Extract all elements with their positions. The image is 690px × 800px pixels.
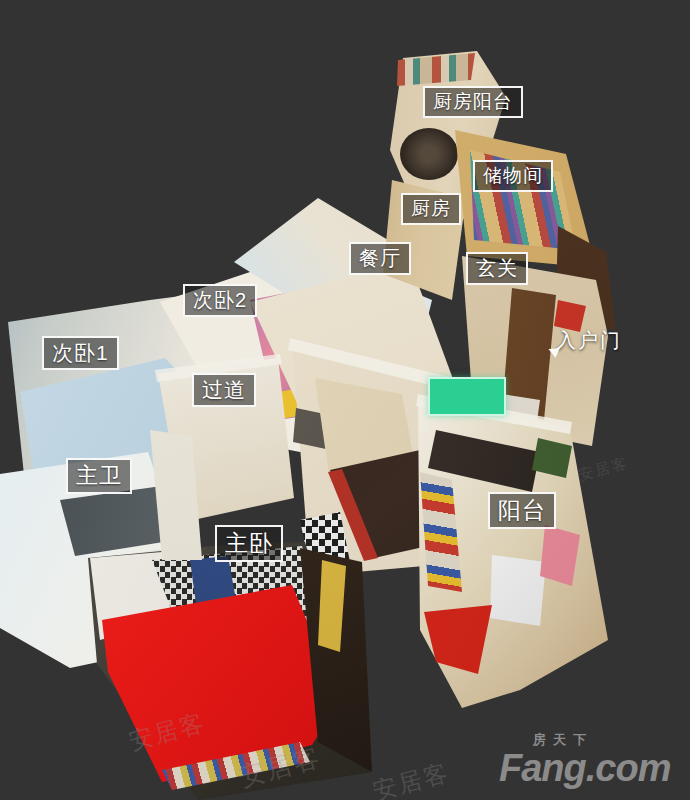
fang-logo: 房天下 Fang.com — [499, 731, 670, 787]
kitchen-balcony-fan — [400, 128, 458, 180]
viewer-stage: 厨房阳台 储物间 厨房 餐厅 玄关 次卧2 次卧1 过道 主卫 主卧 阳台 入户… — [0, 0, 690, 800]
label-master-bedroom[interactable]: 主卧 — [215, 525, 283, 562]
label-master-bathroom[interactable]: 主卫 — [66, 458, 132, 494]
label-entryway[interactable]: 玄关 — [466, 252, 528, 285]
label-kitchen-balcony[interactable]: 厨房阳台 — [423, 86, 523, 118]
label-storage-room[interactable]: 储物间 — [473, 160, 553, 192]
fang-logo-latin: Fang.com — [499, 749, 670, 787]
position-marker[interactable] — [428, 377, 506, 416]
label-kitchen[interactable]: 厨房 — [401, 193, 461, 225]
label-bedroom-1[interactable]: 次卧1 — [42, 336, 119, 370]
label-dining-room[interactable]: 餐厅 — [349, 242, 411, 275]
label-bedroom-2[interactable]: 次卧2 — [183, 284, 257, 317]
label-hallway[interactable]: 过道 — [192, 373, 256, 407]
label-entry-door[interactable]: 入户门 — [556, 327, 622, 354]
label-balcony[interactable]: 阳台 — [488, 492, 556, 529]
dollhouse-3d-model[interactable] — [0, 0, 690, 800]
